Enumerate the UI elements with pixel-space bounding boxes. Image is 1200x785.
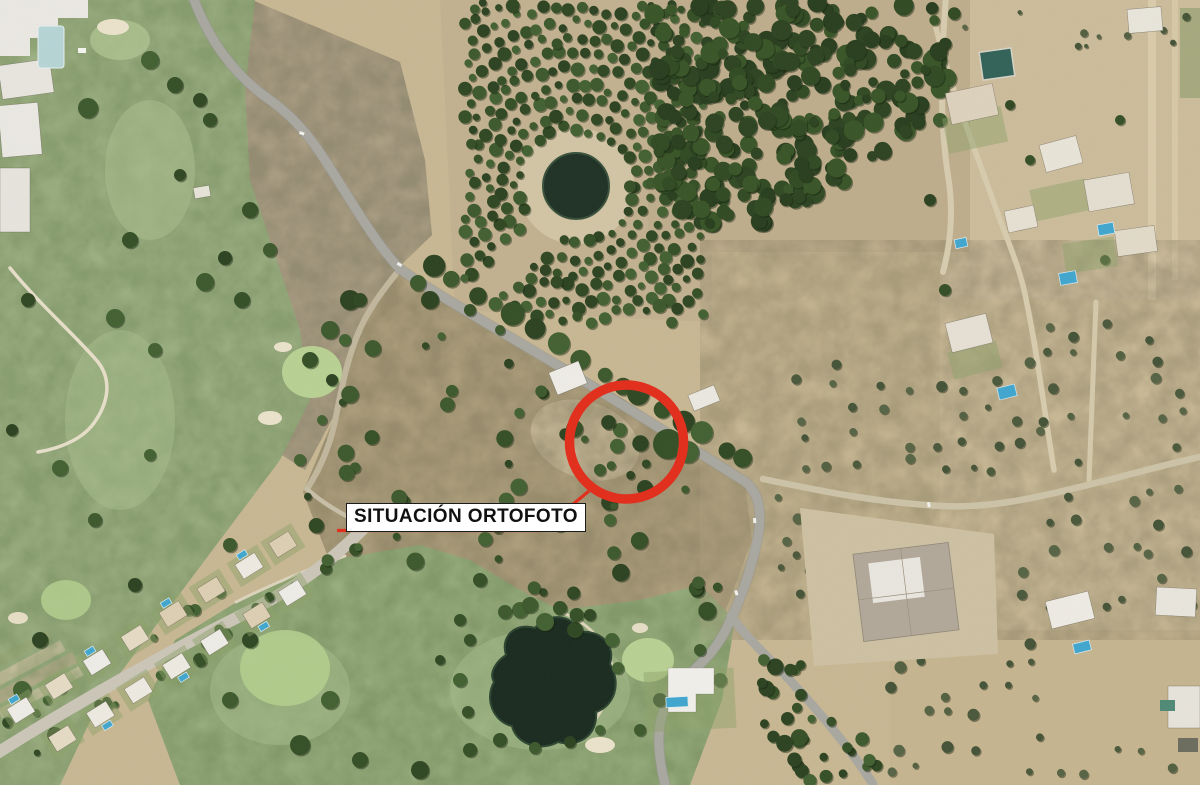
orthophoto-map: SITUACIÓN ORTOFOTO bbox=[0, 0, 1200, 785]
situacion-ortofoto-label: SITUACIÓN ORTOFOTO bbox=[346, 503, 586, 532]
aerial-photo bbox=[0, 0, 1200, 785]
